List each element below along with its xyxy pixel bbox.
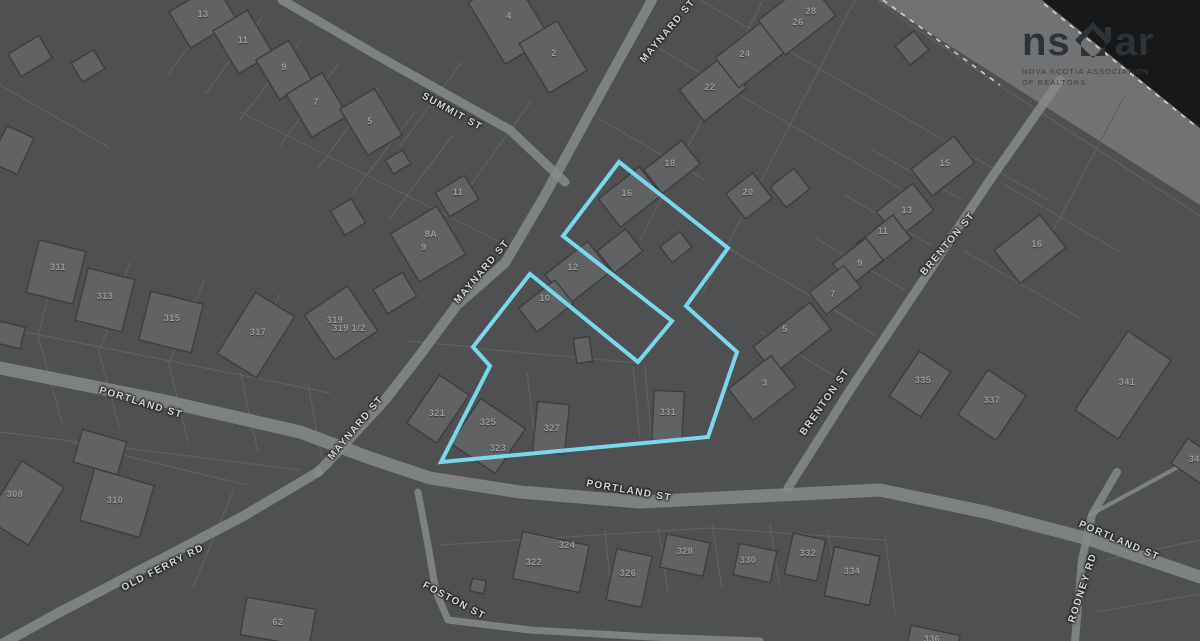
logo-text-suffix: ar <box>1115 26 1155 58</box>
logo-text-prefix: ns <box>1022 26 1071 58</box>
house-number-label: 18 <box>664 158 675 168</box>
house-number-label: 313 <box>97 291 114 301</box>
house-number-label: 22 <box>704 82 715 92</box>
house-number-label: 7 <box>830 289 836 299</box>
house-number-label: 2 <box>551 48 557 58</box>
house-number-label: 13 <box>901 205 912 215</box>
house-number-label: 16 <box>1031 239 1042 249</box>
house-number-label: 310 <box>107 495 124 505</box>
house-number-label: 335 <box>915 375 932 385</box>
house-number-label: 11 <box>878 226 889 236</box>
house-number-label: 16 <box>621 188 632 198</box>
house-number-label: 332 <box>800 548 817 558</box>
house-number-label: 327 <box>544 423 561 433</box>
house-number-label: 12 <box>567 262 578 272</box>
house-number-label: 15 <box>939 158 950 168</box>
house-number-label: 13 <box>197 9 208 19</box>
house-number-label: 334 <box>844 566 861 576</box>
house-number-label: 26 <box>792 17 803 27</box>
nsar-watermark: ns ar NOVA SCOTIA ASSOCIATION OF REALTOR… <box>1022 18 1200 89</box>
house-number-label: 5 <box>367 116 373 126</box>
house-number-label: 324 <box>559 540 576 550</box>
house-number-label: 322 <box>526 557 543 567</box>
house-number-label: 317 <box>250 327 267 337</box>
house-number-label: 343 <box>1189 454 1200 464</box>
house-number-label: 3 <box>762 378 768 388</box>
house-number-label: 62 <box>272 617 283 627</box>
nsar-tagline: NOVA SCOTIA ASSOCIATION OF REALTORS <box>1022 66 1200 89</box>
house-number-label: 28 <box>805 6 816 16</box>
nsar-logo: ns ar <box>1022 18 1200 58</box>
house-number-label: 325 <box>480 417 497 427</box>
house-number-label: 11 <box>238 35 249 45</box>
house-number-label: 341 <box>1119 377 1136 387</box>
house-number-label: 326 <box>620 568 637 578</box>
house-number-label: 331 <box>660 407 677 417</box>
house-number-label: 24 <box>739 49 750 59</box>
house-number-label: 311 <box>50 262 66 272</box>
house-icon <box>1072 18 1114 58</box>
house-number-label: 10 <box>539 293 550 303</box>
house-number-label: 319 1/2 <box>332 323 366 333</box>
house-number-label: 321 <box>429 408 446 418</box>
house-number-label: 337 <box>984 395 1001 405</box>
house-number-label: 4 <box>506 11 512 21</box>
house-number-label: 11 <box>453 187 464 197</box>
house-number-label: 328 <box>677 546 694 556</box>
house-number-label: 5 <box>782 324 788 334</box>
house-number-label: 8A <box>425 229 438 239</box>
house-number-label: 7 <box>313 97 319 107</box>
house-number-label: 9 <box>281 62 287 72</box>
house-number-label: 9 <box>857 258 863 268</box>
house-number-label: 20 <box>742 187 753 197</box>
house-number-label: 336 <box>924 634 941 641</box>
house-number-label: 308 <box>7 489 24 499</box>
house-number-label: 9 <box>421 242 427 252</box>
house-number-label: 315 <box>164 313 181 323</box>
house-number-label: 323 <box>490 443 507 453</box>
house-number-label: 330 <box>740 555 757 565</box>
map-canvas[interactable]: SUMMIT STMAYNARD STMAYNARD STMAYNARD STB… <box>0 0 1200 641</box>
